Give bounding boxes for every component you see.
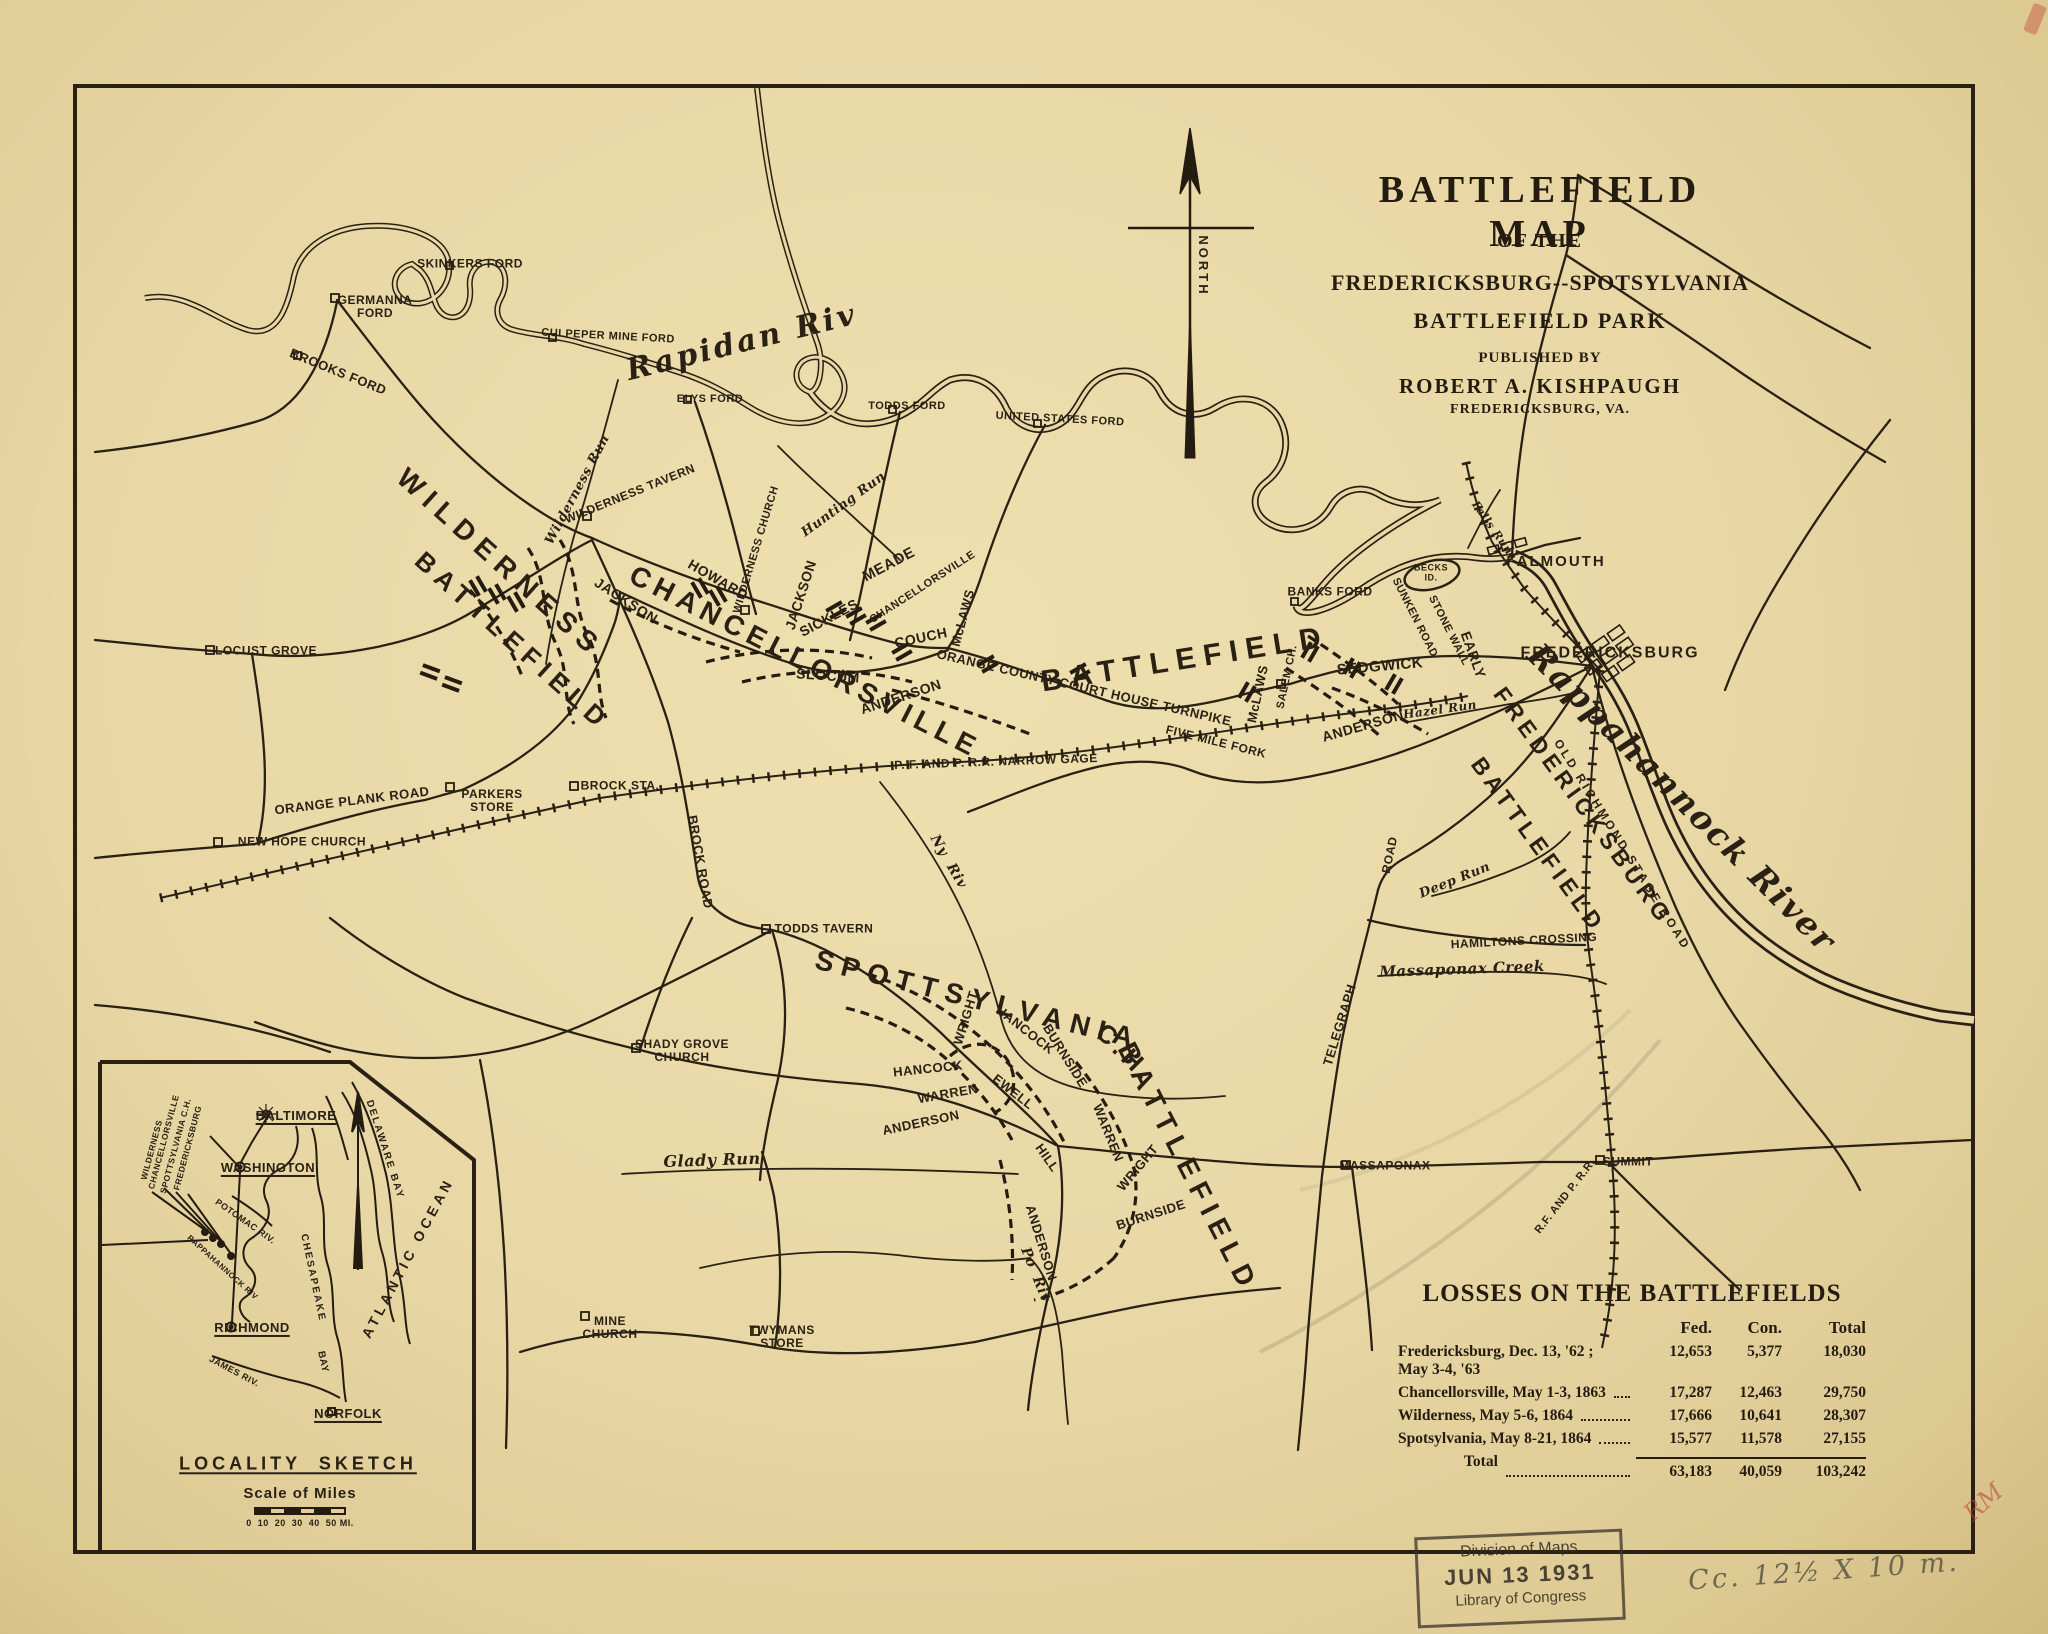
label-summit: SUMMIT [1603,1156,1653,1169]
losses-header-total: Total [1782,1318,1866,1338]
row-name: Fredericksburg, Dec. 13, '62 ; May 3-4, … [1398,1343,1622,1379]
leader-dots [1506,1453,1630,1477]
row-fed: 12,653 [1636,1343,1712,1379]
table-row: Chancellorsville, May 1-3, 1863 [1398,1384,1636,1402]
row-total: 18,030 [1782,1343,1866,1379]
row-fed: 17,666 [1636,1407,1712,1425]
label-skinkers-ford: SKINKERS FORD [417,258,523,271]
row-name: Wilderness, May 5-6, 1864 [1398,1407,1573,1425]
map-title-park-2: BATTLEFIELD PARK [1330,308,1750,334]
row-con: 12,463 [1712,1384,1782,1402]
label-new-hope-church: NEW HOPE CHURCH [238,836,366,849]
map-title-of-the: OF THE [1330,230,1750,253]
label-banks-ford: BANKS FORD [1288,586,1373,599]
inset-label-scale-numbers: 0 10 20 30 40 50 MI. [246,1519,354,1529]
table-row: Spotsylvania, May 8-21, 1864 [1398,1430,1636,1448]
row-total: 27,155 [1782,1430,1866,1448]
label-fredericksburg-city: FREDERICKSBURG [1520,644,1699,661]
losses-table: LOSSES ON THE BATTLEFIELDS Fed. Con. Tot… [1398,1280,1866,1481]
table-row: Wilderness, May 5-6, 1864 [1398,1407,1636,1425]
row-con: 10,641 [1712,1407,1782,1425]
label-locust-grove: LOCUST GROVE [215,645,317,658]
inset-label-washington: WASHINGTON [221,1161,315,1175]
library-stamp: Division of Maps JUN 13 1931 Library of … [1414,1529,1626,1629]
losses-header-fed: Fed. [1636,1318,1712,1338]
battlefield-map-sheet: BATTLEFIELD MAP OF THE FREDERICKSBURG--S… [0,0,2048,1634]
label-todds-ford: TODDS FORD [868,401,946,413]
leader-dots [1614,1384,1630,1398]
losses-header-con: Con. [1712,1318,1782,1338]
row-con: 11,578 [1712,1430,1782,1448]
row-total: 29,750 [1782,1384,1866,1402]
inset-label-scale-of-miles: Scale of Miles [243,1486,356,1502]
label-brock-station: BROCK STA. [581,780,660,793]
label-germanna-ford: GERMANNA FORD [338,294,413,320]
total-label: Total [1464,1453,1498,1481]
label-parkers-store: PARKERS STORE [461,788,522,814]
total-total: 103,242 [1782,1457,1866,1481]
row-fed: 17,287 [1636,1384,1712,1402]
published-by: PUBLISHED BY [1330,350,1750,367]
label-todds-tavern: TODDS TAVERN [775,923,874,936]
inset-label-baltimore: BALTIMORE [256,1109,337,1123]
label-falmouth: FALMOUTH [1506,554,1605,570]
losses-table-title: LOSSES ON THE BATTLEFIELDS [1398,1280,1866,1308]
total-con: 40,059 [1712,1457,1782,1481]
table-total-row: Total [1398,1453,1636,1481]
publisher-name: ROBERT A. KISHPAUGH [1330,374,1750,399]
map-title-park-1: FREDERICKSBURG--SPOTSYLVANIA [1330,270,1750,296]
row-name: Chancellorsville, May 1-3, 1863 [1398,1384,1606,1402]
label-twymans-store: TWYMANS STORE [749,1324,815,1350]
inset-label-locality-sketch: LOCALITY SKETCH [179,1454,417,1473]
row-total: 28,307 [1782,1407,1866,1425]
label-shady-grove-church: SHADY GROVE CHURCH [635,1038,729,1064]
north-arrow [1128,128,1254,458]
losses-header-spacer [1398,1318,1636,1338]
label-glady-run: Glady Run [663,1150,761,1171]
label-becks-island: BECKS ID. [1414,563,1448,582]
inset-label-richmond: RICHMOND [214,1321,290,1335]
label-elys-ford: ELYS FORD [677,394,743,406]
row-fed: 15,577 [1636,1430,1712,1448]
publisher-city: FREDERICKSBURG, VA. [1330,402,1750,418]
leader-dots [1599,1430,1630,1444]
row-name: Spotsylvania, May 8-21, 1864 [1398,1430,1591,1448]
label-north: NORTH [1196,235,1210,296]
table-row: Fredericksburg, Dec. 13, '62 ; May 3-4, … [1398,1343,1636,1379]
leader-dots [1581,1407,1630,1421]
row-con: 5,377 [1712,1343,1782,1379]
inset-label-norfolk: NORFOLK [314,1407,382,1421]
label-mine-church: MINE CHURCH [583,1315,638,1341]
label-massaponax: MASSAPONAX [1339,1160,1430,1173]
total-fed: 63,183 [1636,1457,1712,1481]
